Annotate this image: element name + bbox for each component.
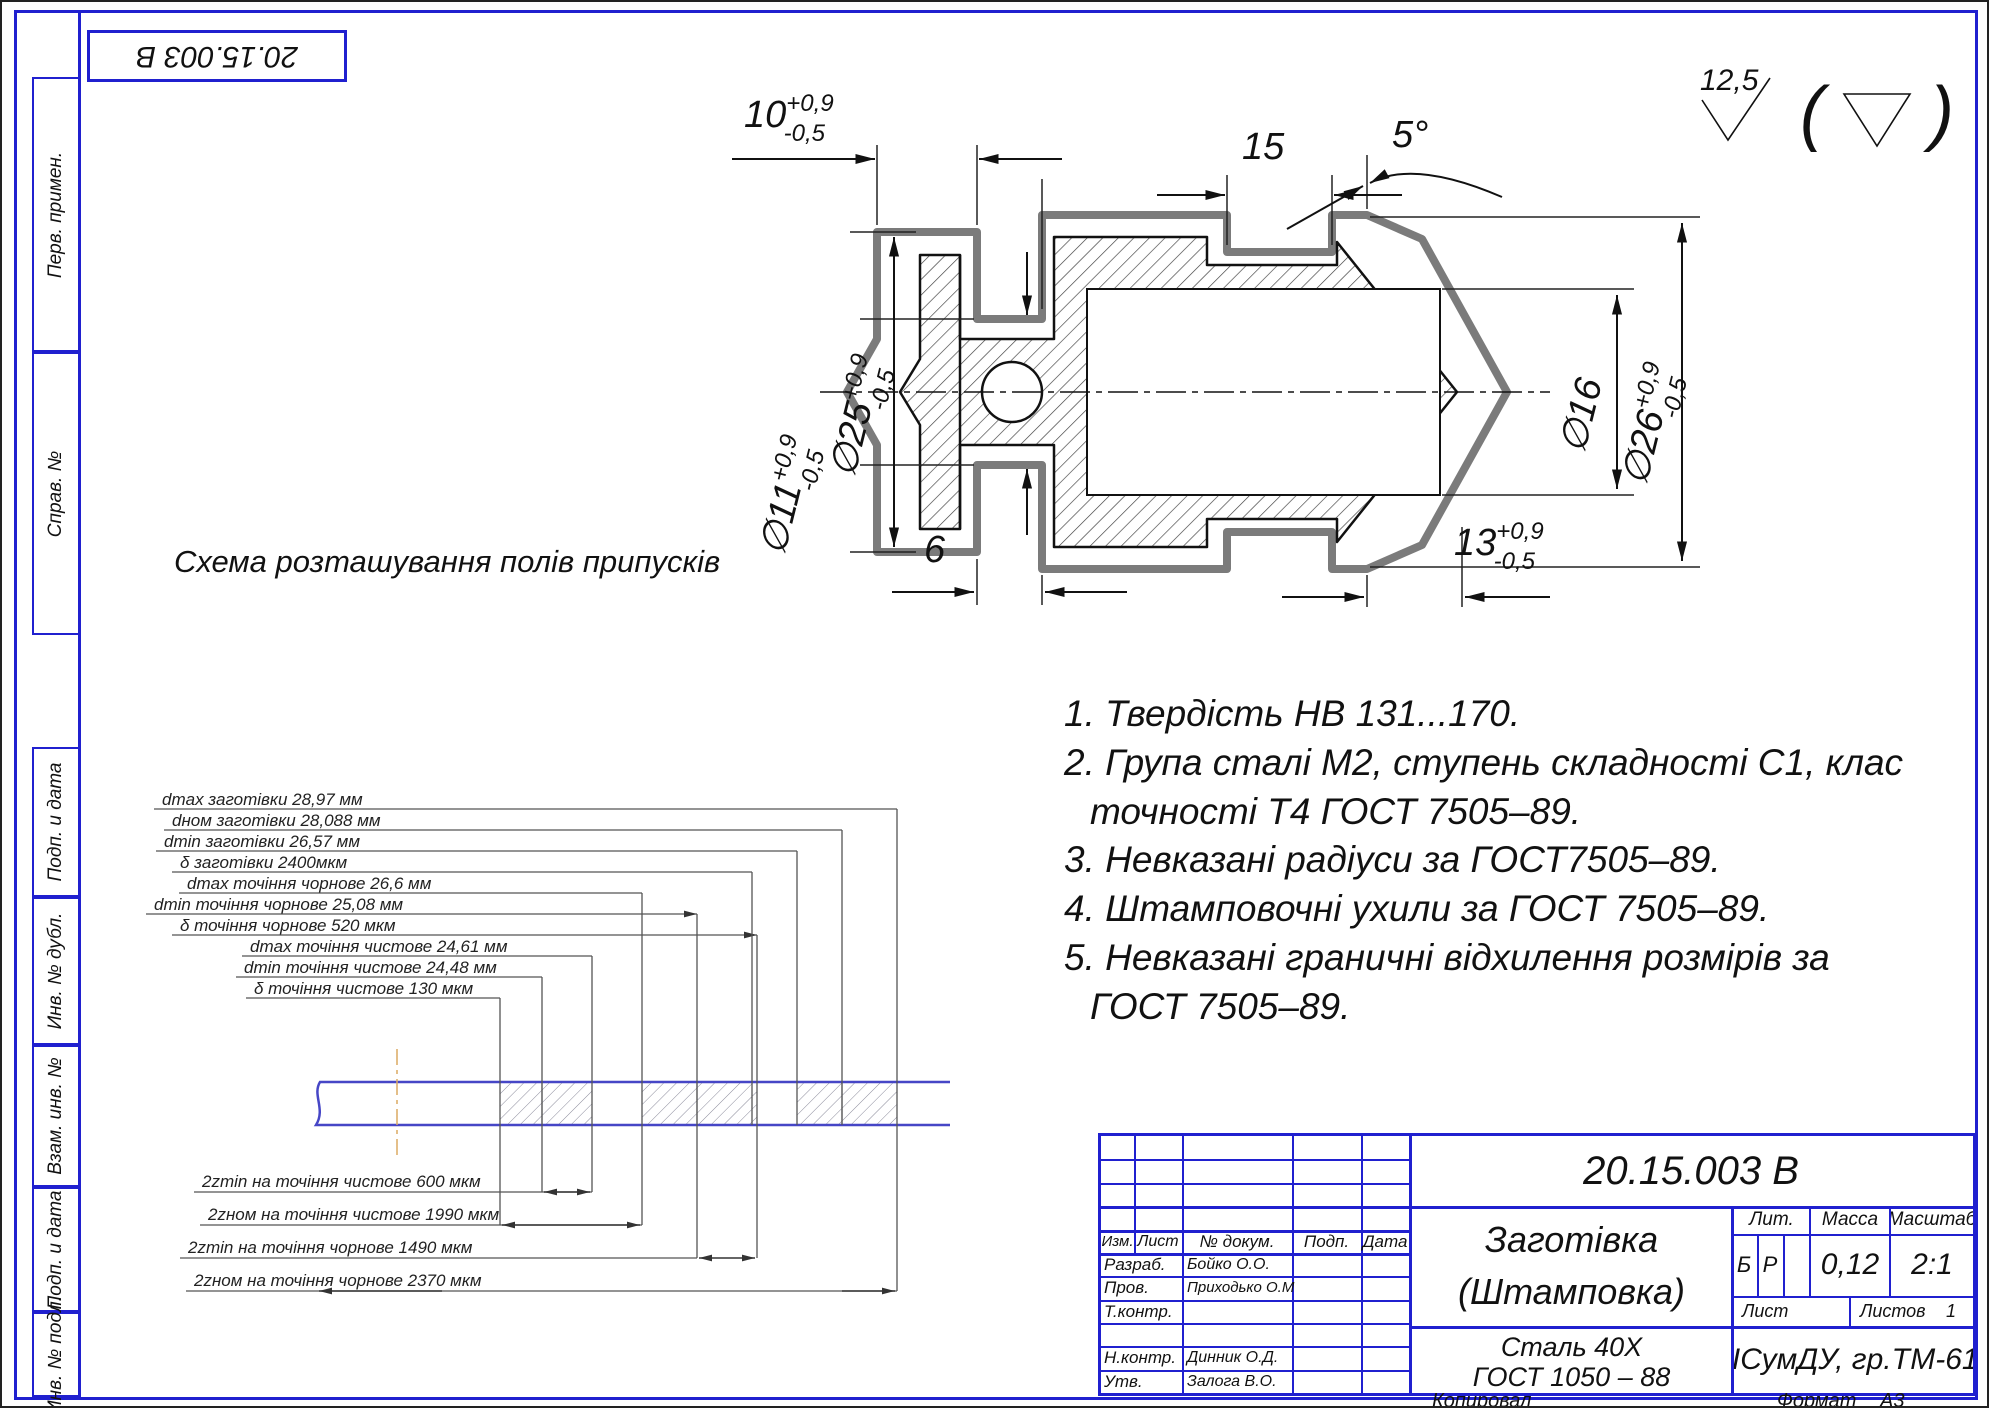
- paren-close: ): [1923, 73, 1954, 153]
- side-stamp-podp-data-2: Подп. и дата: [32, 1187, 80, 1312]
- dim-25-label: ∅25+0,9-0,5: [818, 351, 903, 484]
- side-stamp-podp-data-1: Подп. и дата: [32, 747, 80, 897]
- tb-material-1: Сталь 40Х: [1412, 1332, 1731, 1362]
- dim-10-label: 10+0,9-0,5: [744, 90, 834, 147]
- tb-sheet-label: Лист: [1739, 1296, 1852, 1326]
- dim-15-label: 15: [1242, 126, 1285, 168]
- main-part-view: 10+0,9-0,5 15 5° ∅25+0,9-0,5 ∅11+0,9-0,5…: [702, 47, 1762, 632]
- scheme-upper-label: dmin заготівки 26,57 мм: [164, 832, 360, 851]
- footer-format-value: А3: [1880, 1390, 1904, 1408]
- drawing-sheet: Перв. примен. Справ. № Подп. и дата Инв.…: [0, 0, 1989, 1408]
- side-label: Перв. примен.: [45, 151, 67, 277]
- title-block: Изм. Лист № докум. Подп. Дата Разраб. Бо…: [1098, 1133, 1976, 1396]
- notes-block: 1. Твердість НВ 131...170. 2. Група стал…: [1064, 690, 1903, 1032]
- corner-doc-number: 20.15.003 В: [136, 39, 298, 73]
- tb-col-ndoc: № докум.: [1182, 1230, 1292, 1253]
- side-stamp-vzam-inv: Взам. инв. №: [32, 1045, 80, 1187]
- scheme-lower-label: 2zmin на точіння чорнове 1490 мкм: [187, 1238, 473, 1257]
- corner-doc-number-stamp: 20.15.003 В: [87, 30, 347, 82]
- tb-col-list: Лист: [1134, 1230, 1182, 1253]
- side-stamp-sprav-no: Справ. №: [32, 352, 80, 635]
- scheme-upper-label: dmin точіння чорнове 25,08 мм: [154, 895, 403, 914]
- scheme-title: Схема розташування полів припусків: [174, 544, 720, 580]
- tb-row-label: Разраб.: [1101, 1253, 1185, 1276]
- scheme-upper-label: dmax заготівки 28,97 мм: [162, 790, 363, 809]
- note-line: 2. Група сталі М2, ступень складності С1…: [1064, 739, 1903, 788]
- side-stamp-inv-podl: Инв. № подл.: [32, 1312, 80, 1397]
- footer-copied-label: Копировал: [1432, 1390, 1531, 1408]
- tb-part-title-2: (Штамповка): [1412, 1266, 1731, 1318]
- note-line: 4. Штамповочні ухили за ГОСТ 7505–89.: [1064, 885, 1903, 934]
- scheme-lower-label: 2zном на точіння чистове 1990 мкм: [207, 1205, 500, 1224]
- dim-6-label: 6: [924, 529, 946, 571]
- note-line: 3. Невказані радіуси за ГОСТ7505–89.: [1064, 836, 1903, 885]
- note-line: ГОСТ 7505–89.: [1064, 983, 1903, 1032]
- tb-mass-label: Масса: [1811, 1206, 1889, 1234]
- tb-material-2: ГОСТ 1050 – 88: [1412, 1362, 1731, 1392]
- allowance-scheme: dmax заготівки 28,97 мм dном заготівки 2…: [142, 777, 952, 1322]
- paren-open: (: [1800, 73, 1831, 153]
- tb-row-label: Пров.: [1101, 1276, 1185, 1299]
- tb-col-izm: Изм.: [1101, 1230, 1134, 1253]
- svg-text:∅16: ∅16: [1552, 373, 1611, 457]
- side-label: Подп. и дата: [45, 1190, 67, 1309]
- scheme-lower-label: 2zmin на точіння чистове 600 мкм: [201, 1172, 481, 1191]
- note-line: 1. Твердість НВ 131...170.: [1064, 690, 1903, 739]
- tb-scale-label: Масштаб: [1891, 1206, 1973, 1234]
- tb-col-podp: Подп.: [1292, 1230, 1361, 1253]
- tb-row-label: [1101, 1323, 1185, 1346]
- svg-text:∅25+0,9-0,5: ∅25+0,9-0,5: [818, 351, 903, 484]
- tb-lit-label: Лит.: [1734, 1206, 1809, 1234]
- svg-text:∅11+0,9-0,5: ∅11+0,9-0,5: [748, 432, 832, 562]
- vertical-drop-lines: [500, 809, 897, 1291]
- dim-11-label: ∅11+0,9-0,5: [748, 432, 832, 562]
- side-label: Инв. № подл.: [45, 1296, 67, 1408]
- scheme-lower-label: 2zном на точіння чорнове 2370 мкм: [193, 1271, 482, 1290]
- side-label: Подп. и дата: [45, 763, 67, 882]
- note-line: 5. Невказані граничні відхилення розмірі…: [1064, 934, 1903, 983]
- scheme-upper-label: δ точіння чорнове 520 мкм: [180, 916, 396, 935]
- tb-sheets-value: 1: [1931, 1296, 1971, 1326]
- footer-format-label: Формат: [1777, 1390, 1856, 1408]
- scheme-upper-label: dmax точіння чорнове 26,6 мм: [187, 874, 432, 893]
- side-label: Справ. №: [45, 450, 67, 536]
- tb-row-name: Залога В.О.: [1184, 1370, 1295, 1393]
- tb-col-data: Дата: [1361, 1230, 1409, 1253]
- bar-hatch-zones: [500, 1083, 897, 1124]
- scheme-upper-label: δ заготівки 2400мкм: [180, 853, 347, 872]
- tb-sheets-label: Листов: [1857, 1296, 1930, 1326]
- tb-row-name: Бойко О.О.: [1184, 1253, 1295, 1276]
- tb-mass-value: 0,12: [1811, 1234, 1889, 1296]
- side-stamp-inv-dubl: Инв. № дубл.: [32, 897, 80, 1045]
- dim-16-label: ∅16: [1552, 373, 1611, 457]
- tb-organization: КІСумДУ, гр.ТМ-61к: [1734, 1326, 1973, 1393]
- tb-part-title-1: Заготівка: [1412, 1214, 1731, 1266]
- scheme-upper-label: dmin точіння чистове 24,48 мм: [244, 958, 497, 977]
- tb-lit-1: Б: [1731, 1234, 1757, 1296]
- tb-row-name: Приходько О.М.: [1184, 1276, 1295, 1299]
- tb-lit-2: Р: [1757, 1234, 1783, 1296]
- scheme-upper-label: δ точіння чистове 130 мкм: [254, 979, 474, 998]
- tb-row-name: [1184, 1300, 1295, 1323]
- tb-doc-number: 20.15.003 В: [1409, 1136, 1973, 1206]
- tb-row-label: Утв.: [1101, 1370, 1185, 1393]
- side-stamp-perv-primen: Перв. примен.: [32, 77, 80, 352]
- scheme-upper-label: dmax точіння чистове 24,61 мм: [250, 937, 508, 956]
- note-line: точності Т4 ГОСТ 7505–89.: [1064, 788, 1903, 837]
- scheme-upper-label: dном заготівки 28,088 мм: [172, 811, 381, 830]
- tb-scale-value: 2:1: [1891, 1234, 1973, 1296]
- tb-row-name: [1184, 1323, 1295, 1346]
- side-label: Инв. № дубл.: [45, 913, 67, 1030]
- roughness-triangle-icon: [1844, 94, 1910, 146]
- tb-row-label: Н.контр.: [1101, 1346, 1185, 1369]
- tb-row-name: Динник О.Д.: [1184, 1346, 1295, 1369]
- side-label: Взам. инв. №: [45, 1057, 67, 1175]
- tb-row-label: Т.контр.: [1101, 1300, 1185, 1323]
- dim-5deg-label: 5°: [1392, 114, 1428, 156]
